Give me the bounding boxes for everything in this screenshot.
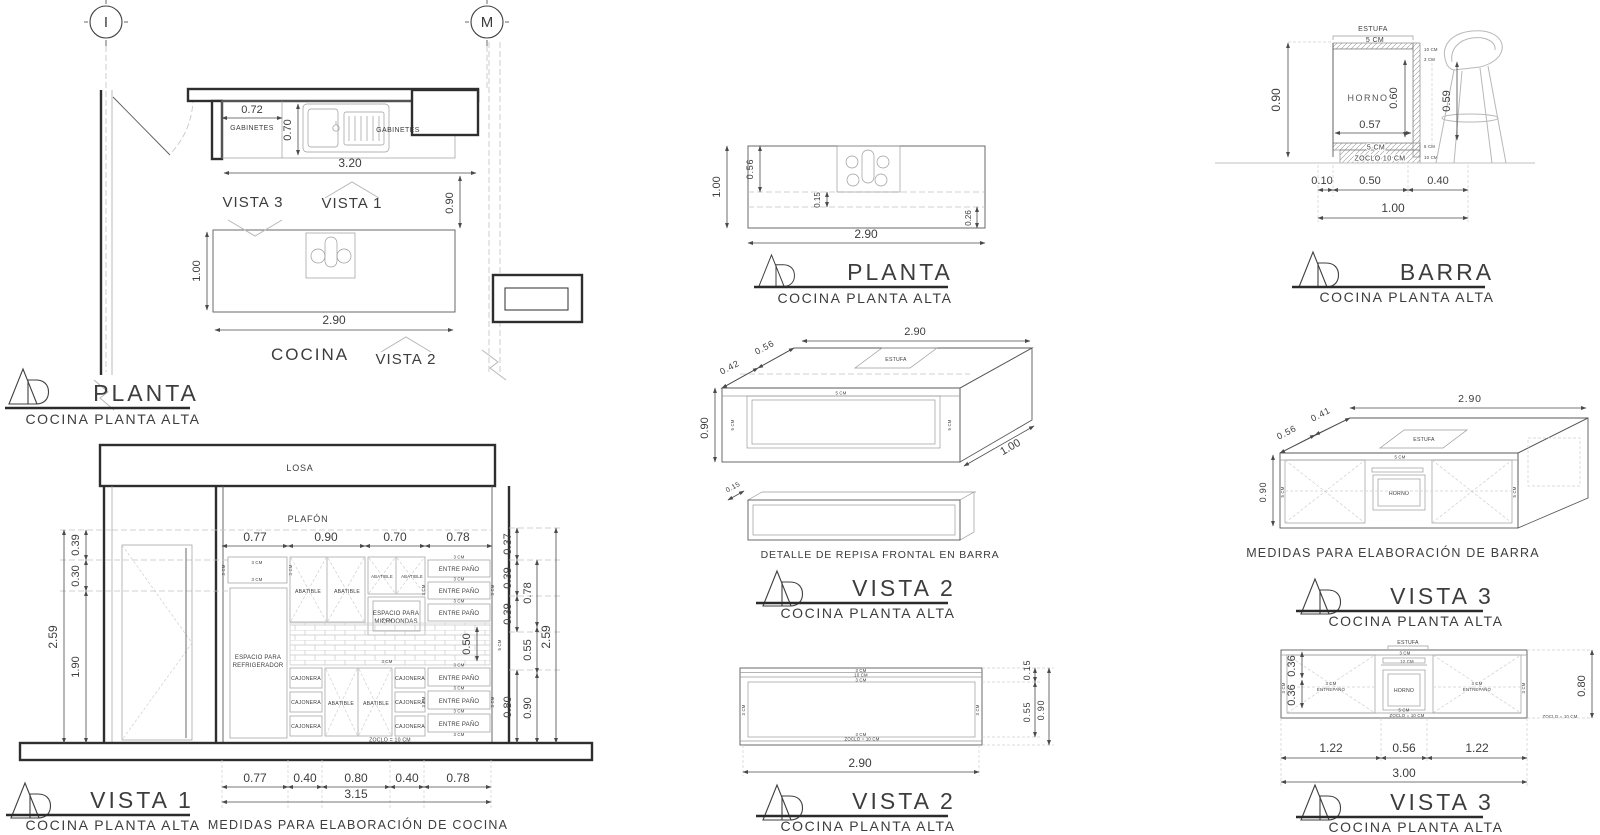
shelf-label: ENTRE PAÑO — [439, 698, 480, 705]
cm-label: 3 CM — [490, 584, 495, 595]
vista1-backsplash: 3 CM 3 CM 0.50 5 CM — [290, 618, 502, 666]
abatible-label: ABATIBLE — [363, 701, 389, 707]
dim-label: 1.00 — [998, 437, 1023, 458]
dim-label: 0.15 — [725, 481, 742, 494]
vista2-marker-label: VISTA 2 — [376, 351, 437, 368]
vista2iso-title-block: VISTA 2 COCINA PLANTA ALTA — [756, 571, 956, 620]
cm-label: 5 CM — [1367, 145, 1385, 152]
dim-label: 0.90 — [1269, 88, 1283, 112]
dim-label: 1.22 — [1465, 741, 1489, 755]
plan-island — [213, 230, 455, 312]
cm-label: 3 CM — [221, 564, 226, 575]
cm-label: 10 CM — [1424, 47, 1438, 52]
barra-geometry: ESTUFA 5 CM 3 CM HORNO 5 CM ZOCLO 10 CM … — [1215, 26, 1535, 163]
dim-label: 0.90 — [314, 530, 338, 544]
gabinetes-label: GABINETES — [376, 127, 420, 134]
cm-label: 3 CM — [381, 659, 392, 664]
barra-title-block: BARRA COCINA PLANTA ALTA — [1292, 252, 1495, 305]
grid-label-i: I — [104, 14, 108, 31]
dim-label: 0.60 — [1388, 87, 1400, 108]
dim-label: 0.42 — [718, 358, 741, 377]
vista1-dims-left: 2.59 0.39 0.30 1.90 — [46, 530, 86, 743]
fridge-door — [122, 545, 192, 740]
dim-label: 0.40 — [293, 771, 317, 785]
vista2-axonometric: ESTUFA 5 CM 5 CM 5 CM 2.90 0.56 0.42 0.9… — [690, 310, 1060, 620]
view-title: VISTA 2 — [852, 575, 956, 601]
dim-label: 0.50 — [461, 633, 473, 654]
room-label: COCINA — [271, 345, 349, 364]
estufa-label: ESTUFA — [1358, 26, 1388, 33]
shelf-label: ENTRE PAÑO — [439, 610, 480, 617]
abatible-label: ABATIBLE — [371, 574, 393, 579]
vista3-elev-title-block: VISTA 3 COCINA PLANTA ALTA — [1296, 785, 1504, 835]
drawing-sheet: I M — [0, 0, 1600, 835]
drawer-label: CAJONERA — [291, 700, 321, 706]
vista1-dims-top: 0.77 0.90 0.70 0.78 — [222, 530, 492, 546]
shelf-label: ENTRE PAÑO — [439, 588, 480, 595]
abatible-label: ABATIBLE — [328, 701, 354, 707]
dim-label: 0.78 — [446, 771, 470, 785]
dim-label: 1.00 — [711, 176, 723, 197]
view-subtitle: COCINA PLANTA ALTA — [1319, 289, 1494, 305]
dim-label: 0.36 — [1286, 684, 1298, 705]
vista3-marker-label: VISTA 3 — [223, 194, 284, 211]
dim-label: 3.00 — [1392, 766, 1416, 780]
dim-label: 0.56 — [1275, 423, 1298, 441]
grid-bubble-m: M — [465, 0, 509, 88]
planta-island-view: 1.00 0.56 0.15 0.26 2.90 PLANTA COCINA P… — [690, 130, 1060, 310]
shelf-label: ENTRE PAÑO — [439, 566, 480, 573]
dim-label: 2.90 — [848, 756, 872, 770]
cm-label: 3 CM — [453, 709, 464, 714]
dim-label: 2.90 — [322, 313, 346, 327]
vista1-title-block: VISTA 1 COCINA PLANTA ALTA MEDIDAS PARA … — [6, 783, 508, 833]
dim-label: 0.90 — [522, 697, 534, 718]
cm-label: 3 CM — [453, 663, 464, 668]
cm-label: 5 CM — [1280, 486, 1285, 497]
dim-label: 0.39 — [70, 534, 82, 555]
dim-label: 1.00 — [191, 260, 203, 281]
plan-view: I M — [0, 0, 600, 430]
dim-label: 0.80 — [1576, 675, 1588, 696]
shelf-label: ENTRE PAÑO — [439, 675, 480, 682]
bar-iso-geometry: ESTUFA 5 CM 5 CM 5 CM — [722, 348, 1032, 462]
vista3-elev-geometry: ESTUFA 3 CM 12 CM HORNO 3 CM ENTREPAÑO 3… — [1281, 640, 1578, 719]
dim-label: 0.10 — [1311, 175, 1332, 187]
dim-label: 3.15 — [344, 787, 368, 801]
gabinetes-label: GABINETES — [230, 125, 274, 132]
dim-label: 0.56 — [745, 159, 755, 180]
sheet-note: MEDIDAS PARA ELABORACIÓN DE BARRA — [1246, 545, 1540, 560]
dim-label: 2.59 — [46, 625, 60, 649]
dim-label: 2.59 — [539, 625, 553, 649]
ad-logo — [1299, 252, 1339, 287]
view-subtitle: COCINA PLANTA ALTA — [1328, 819, 1503, 835]
vista1-elevation: LOSA PLAFÓN 0.77 0.90 0.70 0.78 — [0, 430, 620, 835]
cm-label: 3 CM — [288, 564, 293, 575]
dim-label: 0.70 — [383, 530, 407, 544]
plafon-label: PLAFÓN — [288, 514, 329, 524]
vista2-elevation: 3 CM 10 CM 3 CM 3 CM 3 CM 3 CM ZOCLO = 1… — [690, 620, 1060, 835]
plan-counter — [188, 89, 478, 159]
view-subtitle: COCINA PLANTA ALTA — [780, 818, 955, 834]
dim-label: 0.40 — [1427, 175, 1448, 187]
view-subtitle: COCINA PLANTA ALTA — [777, 290, 952, 306]
fridge-space-label: ESPACIO PARA — [235, 655, 281, 661]
view-title: BARRA — [1400, 259, 1494, 285]
view-title: PLANTA — [93, 380, 199, 406]
vista3iso-title-block: VISTA 3 COCINA PLANTA ALTA — [1296, 579, 1504, 629]
dim-label: 0.57 — [1359, 119, 1380, 131]
cm-label: 3 CM — [1521, 682, 1526, 693]
cm-label: 3 CM — [975, 704, 980, 715]
dim-label: 0.72 — [241, 104, 262, 116]
zoclo-label: ZOCLO = 10 CM — [369, 738, 411, 744]
shelf-label: ENTRE PAÑO — [439, 721, 480, 728]
dim-label: 0.70 — [282, 119, 294, 140]
cm-label: 3 CM — [251, 560, 262, 565]
cm-label: 5 CM — [1394, 455, 1405, 460]
dim-label: 3.20 — [338, 156, 362, 170]
cm-label: 3 CM — [453, 686, 464, 691]
planta2-title-block: PLANTA COCINA PLANTA ALTA — [754, 255, 953, 306]
dim-label: 0.36 — [1286, 655, 1298, 676]
cm-label: 3 CM — [1399, 651, 1410, 656]
dim-label: 0.37 — [502, 533, 514, 554]
horno-label: HORNO — [1394, 688, 1414, 694]
cm-label: 5 CM — [835, 391, 846, 396]
zoclo-label: ZOCLO = 10 CM — [845, 737, 880, 742]
view-subtitle: COCINA PLANTA ALTA — [25, 411, 200, 427]
cm-label: 3 CM — [421, 584, 426, 595]
view-subtitle: COCINA PLANTA ALTA — [1328, 613, 1503, 629]
dim-label: 1.22 — [1319, 741, 1343, 755]
dim-label: 0.77 — [243, 530, 267, 544]
vista2-elev-geometry: 3 CM 10 CM 3 CM 3 CM 3 CM 3 CM ZOCLO = 1… — [740, 668, 1054, 745]
vista1-marker-label: VISTA 1 — [322, 195, 383, 212]
ad-logo — [11, 783, 51, 818]
plan-view-markers: VISTA 3 VISTA 1 COCINA VISTA 2 — [223, 182, 437, 368]
drawer-label: CAJONERA — [395, 724, 425, 730]
drawer-label: CAJONERA — [291, 676, 321, 682]
shelf-label: ENTREPAÑO — [1317, 687, 1346, 692]
vista3-elevation: ESTUFA 3 CM 12 CM HORNO 3 CM ENTREPAÑO 3… — [1230, 630, 1600, 835]
view-title: VISTA 3 — [1390, 583, 1494, 609]
cm-label: 5 CM — [947, 419, 952, 430]
dim-label: 0.80 — [344, 771, 368, 785]
plan-window-detail — [493, 275, 582, 322]
dim-label: 0.26 — [964, 210, 973, 226]
cm-label: 3 CM — [251, 577, 262, 582]
view-title: PLANTA — [847, 259, 953, 285]
dim-label: 0.90 — [1036, 700, 1046, 721]
vista1-dims-bottom: 0.77 0.40 0.80 0.40 0.78 3.15 — [222, 760, 491, 808]
vista3-axonometric: ESTUFA 5 CM HORNO 5 CM 5 CM 2.90 0.41 0.… — [1230, 380, 1600, 630]
cm-label: 3 CM — [421, 696, 426, 707]
grid-bubble-i: I — [84, 0, 128, 372]
abatible-label: ABATIBLE — [334, 589, 360, 595]
sheet-note: MEDIDAS PARA ELABORACIÓN DE COCINA — [208, 817, 508, 832]
cm-label: 3 CM — [855, 678, 866, 683]
grid-label-m: M — [481, 14, 494, 31]
cm-label: 3 CM — [381, 618, 392, 623]
abatible-label: ABATIBLE — [295, 589, 321, 595]
cm-label: 3 CM — [453, 732, 464, 737]
dim-label: 0.55 — [1022, 702, 1032, 723]
cm-label: 5 CM — [497, 639, 502, 650]
estufa-label: ESTUFA — [1397, 640, 1419, 646]
drawer-label: CAJONERA — [291, 724, 321, 730]
dim-label: 2.90 — [854, 227, 878, 241]
dim-label: 0.90 — [699, 417, 711, 438]
view-title: VISTA 2 — [852, 788, 956, 814]
view-subtitle: COCINA PLANTA ALTA — [25, 817, 200, 833]
dim-label: 0.56 — [753, 338, 776, 357]
dim-label: 2.90 — [1458, 393, 1482, 405]
estufa-label: ESTUFA — [885, 357, 907, 363]
dim-label: 0.78 — [522, 582, 534, 603]
vista1-base-cabinets: CAJONERA CAJONERA CAJONERA ABATIBLE ABAT… — [290, 663, 495, 744]
fridge-space-label: REFRIGERADOR — [233, 663, 284, 669]
view-title: VISTA 3 — [1390, 789, 1494, 815]
view-subtitle: COCINA PLANTA ALTA — [780, 605, 955, 620]
drawer-label: CAJONERA — [395, 676, 425, 682]
dim-label: 0.30 — [70, 565, 82, 586]
horno-label: HORNO — [1389, 491, 1409, 497]
ad-logo — [763, 571, 803, 606]
plan-door — [113, 97, 193, 155]
dim-label: 0.41 — [1309, 405, 1332, 423]
barra-section: ESTUFA 5 CM 3 CM HORNO 5 CM ZOCLO 10 CM … — [1200, 0, 1600, 310]
cm-label: 3 CM — [1471, 681, 1482, 686]
ad-logo — [1301, 785, 1341, 820]
view-title: VISTA 1 — [90, 787, 194, 813]
dim-label: 0.39 — [502, 567, 514, 588]
cm-label: 5 CM — [730, 419, 735, 430]
dim-label: 0.39 — [502, 603, 514, 624]
dim-label: 0.59 — [1441, 90, 1453, 111]
cm-label: 3 CM — [453, 555, 464, 560]
cm-label: 3 CM — [741, 704, 746, 715]
cm-label: 5 CM — [1424, 144, 1435, 149]
estufa-label: ESTUFA — [1413, 437, 1435, 443]
dim-label: 2.90 — [904, 326, 925, 338]
shelf-label: ENTREPAÑO — [1463, 687, 1492, 692]
ad-logo — [1301, 579, 1341, 614]
dim-label: 1.90 — [70, 656, 82, 677]
dim-label: 0.15 — [1022, 660, 1032, 681]
dim-label: 0.80 — [502, 696, 514, 717]
cm-label: 5 CM — [1512, 486, 1517, 497]
cm-label: 3 CM — [453, 577, 464, 582]
cm-label: 5 CM — [1398, 708, 1409, 713]
abatible-label: ABATIBLE — [401, 574, 423, 579]
cm-label: 3 CM — [1325, 681, 1336, 686]
horno-label: HORNO — [1348, 93, 1389, 103]
cm-label: 3 CM — [490, 696, 495, 707]
dim-label: 0.50 — [1359, 175, 1380, 187]
cm-label: 3 CM — [453, 599, 464, 604]
dim-label: 0.78 — [446, 530, 470, 544]
plan-title-block: PLANTA COCINA PLANTA ALTA — [5, 369, 201, 427]
ad-logo — [759, 255, 795, 287]
vista2-elev-title-block: VISTA 2 COCINA PLANTA ALTA — [756, 785, 956, 834]
cm-label: 10 CM — [1424, 155, 1438, 160]
dim-label: 0.15 — [813, 192, 822, 208]
dim-label: 0.90 — [444, 192, 456, 213]
zoclo-label: ZOCLO = 10 CM — [1390, 713, 1425, 718]
dim-label: 0.56 — [1392, 741, 1416, 755]
barra-iso-dims: 2.90 0.41 0.56 0.90 — [1258, 393, 1586, 526]
dim-label: 0.90 — [1258, 482, 1268, 503]
dim-label: 0.55 — [522, 639, 534, 660]
dim-label: 1.00 — [1381, 201, 1405, 215]
cm-label: 3 CM — [1424, 57, 1435, 62]
microwave-space-label: ESPACIO PARA — [373, 611, 419, 617]
zoclo-label: ZOCLO 10 CM — [1354, 156, 1405, 163]
island-plan-geometry — [748, 146, 985, 228]
dim-label: 0.77 — [243, 771, 267, 785]
losa-label: LOSA — [286, 463, 313, 473]
barra-iso-geometry: ESTUFA 5 CM HORNO 5 CM 5 CM — [1280, 418, 1588, 528]
plan-dimensions: 0.72 GABINETES GABINETES 0.70 3.20 0.90 … — [191, 104, 476, 330]
shelf-detail: 0.15 DETALLE DE REPISA FRONTAL EN BARRA — [725, 481, 999, 561]
ad-logo — [9, 369, 49, 404]
detail-caption: DETALLE DE REPISA FRONTAL EN BARRA — [761, 549, 1000, 561]
dim-label: 0.40 — [395, 771, 419, 785]
